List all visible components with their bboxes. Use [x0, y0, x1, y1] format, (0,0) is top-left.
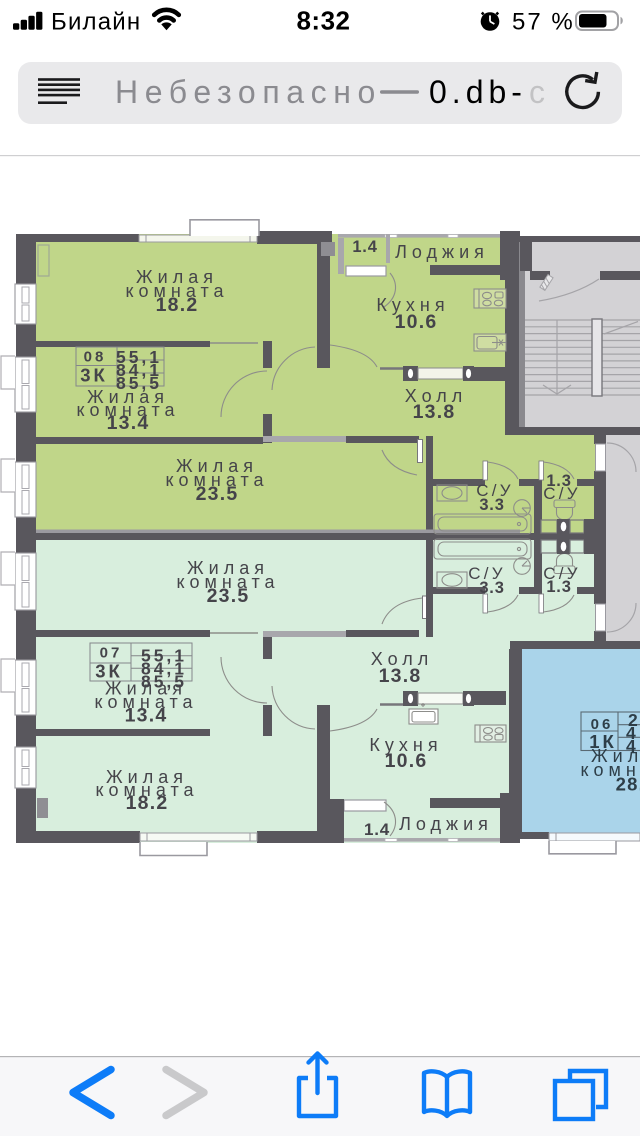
- svg-text:3.3: 3.3: [479, 579, 504, 597]
- svg-text:С/У: С/У: [543, 484, 580, 503]
- svg-text:c: c: [529, 74, 545, 110]
- svg-text:Лоджия: Лоджия: [395, 242, 489, 262]
- svg-text:Лоджия: Лоджия: [399, 814, 493, 834]
- svg-text:13.8: 13.8: [379, 665, 422, 687]
- svg-text:3.3: 3.3: [479, 496, 504, 514]
- svg-text:13.4: 13.4: [107, 412, 150, 434]
- svg-text:3К: 3К: [80, 365, 108, 386]
- svg-text:10.6: 10.6: [385, 750, 428, 772]
- svg-text:1.4: 1.4: [352, 238, 377, 256]
- svg-text:1.4: 1.4: [364, 820, 390, 839]
- svg-text:08: 08: [84, 349, 107, 366]
- svg-text:23.5: 23.5: [207, 585, 250, 607]
- svg-text:07: 07: [100, 645, 123, 662]
- svg-text:18.2: 18.2: [156, 294, 199, 316]
- svg-text:57 %: 57 %: [512, 9, 575, 36]
- svg-text:10.6: 10.6: [395, 311, 438, 333]
- svg-text:28.2: 28.2: [616, 774, 640, 795]
- svg-text:Небезопасно: Небезопасно: [115, 74, 382, 110]
- svg-text:13.4: 13.4: [125, 705, 168, 727]
- svg-text:8:32: 8:32: [296, 6, 350, 36]
- svg-text:23.5: 23.5: [196, 483, 239, 505]
- svg-text:18.2: 18.2: [126, 792, 169, 814]
- svg-text:1.3: 1.3: [546, 578, 571, 596]
- svg-text:13.8: 13.8: [413, 401, 456, 423]
- svg-text:Билайн: Билайн: [51, 9, 141, 36]
- svg-text:0.db-: 0.db-: [429, 74, 527, 110]
